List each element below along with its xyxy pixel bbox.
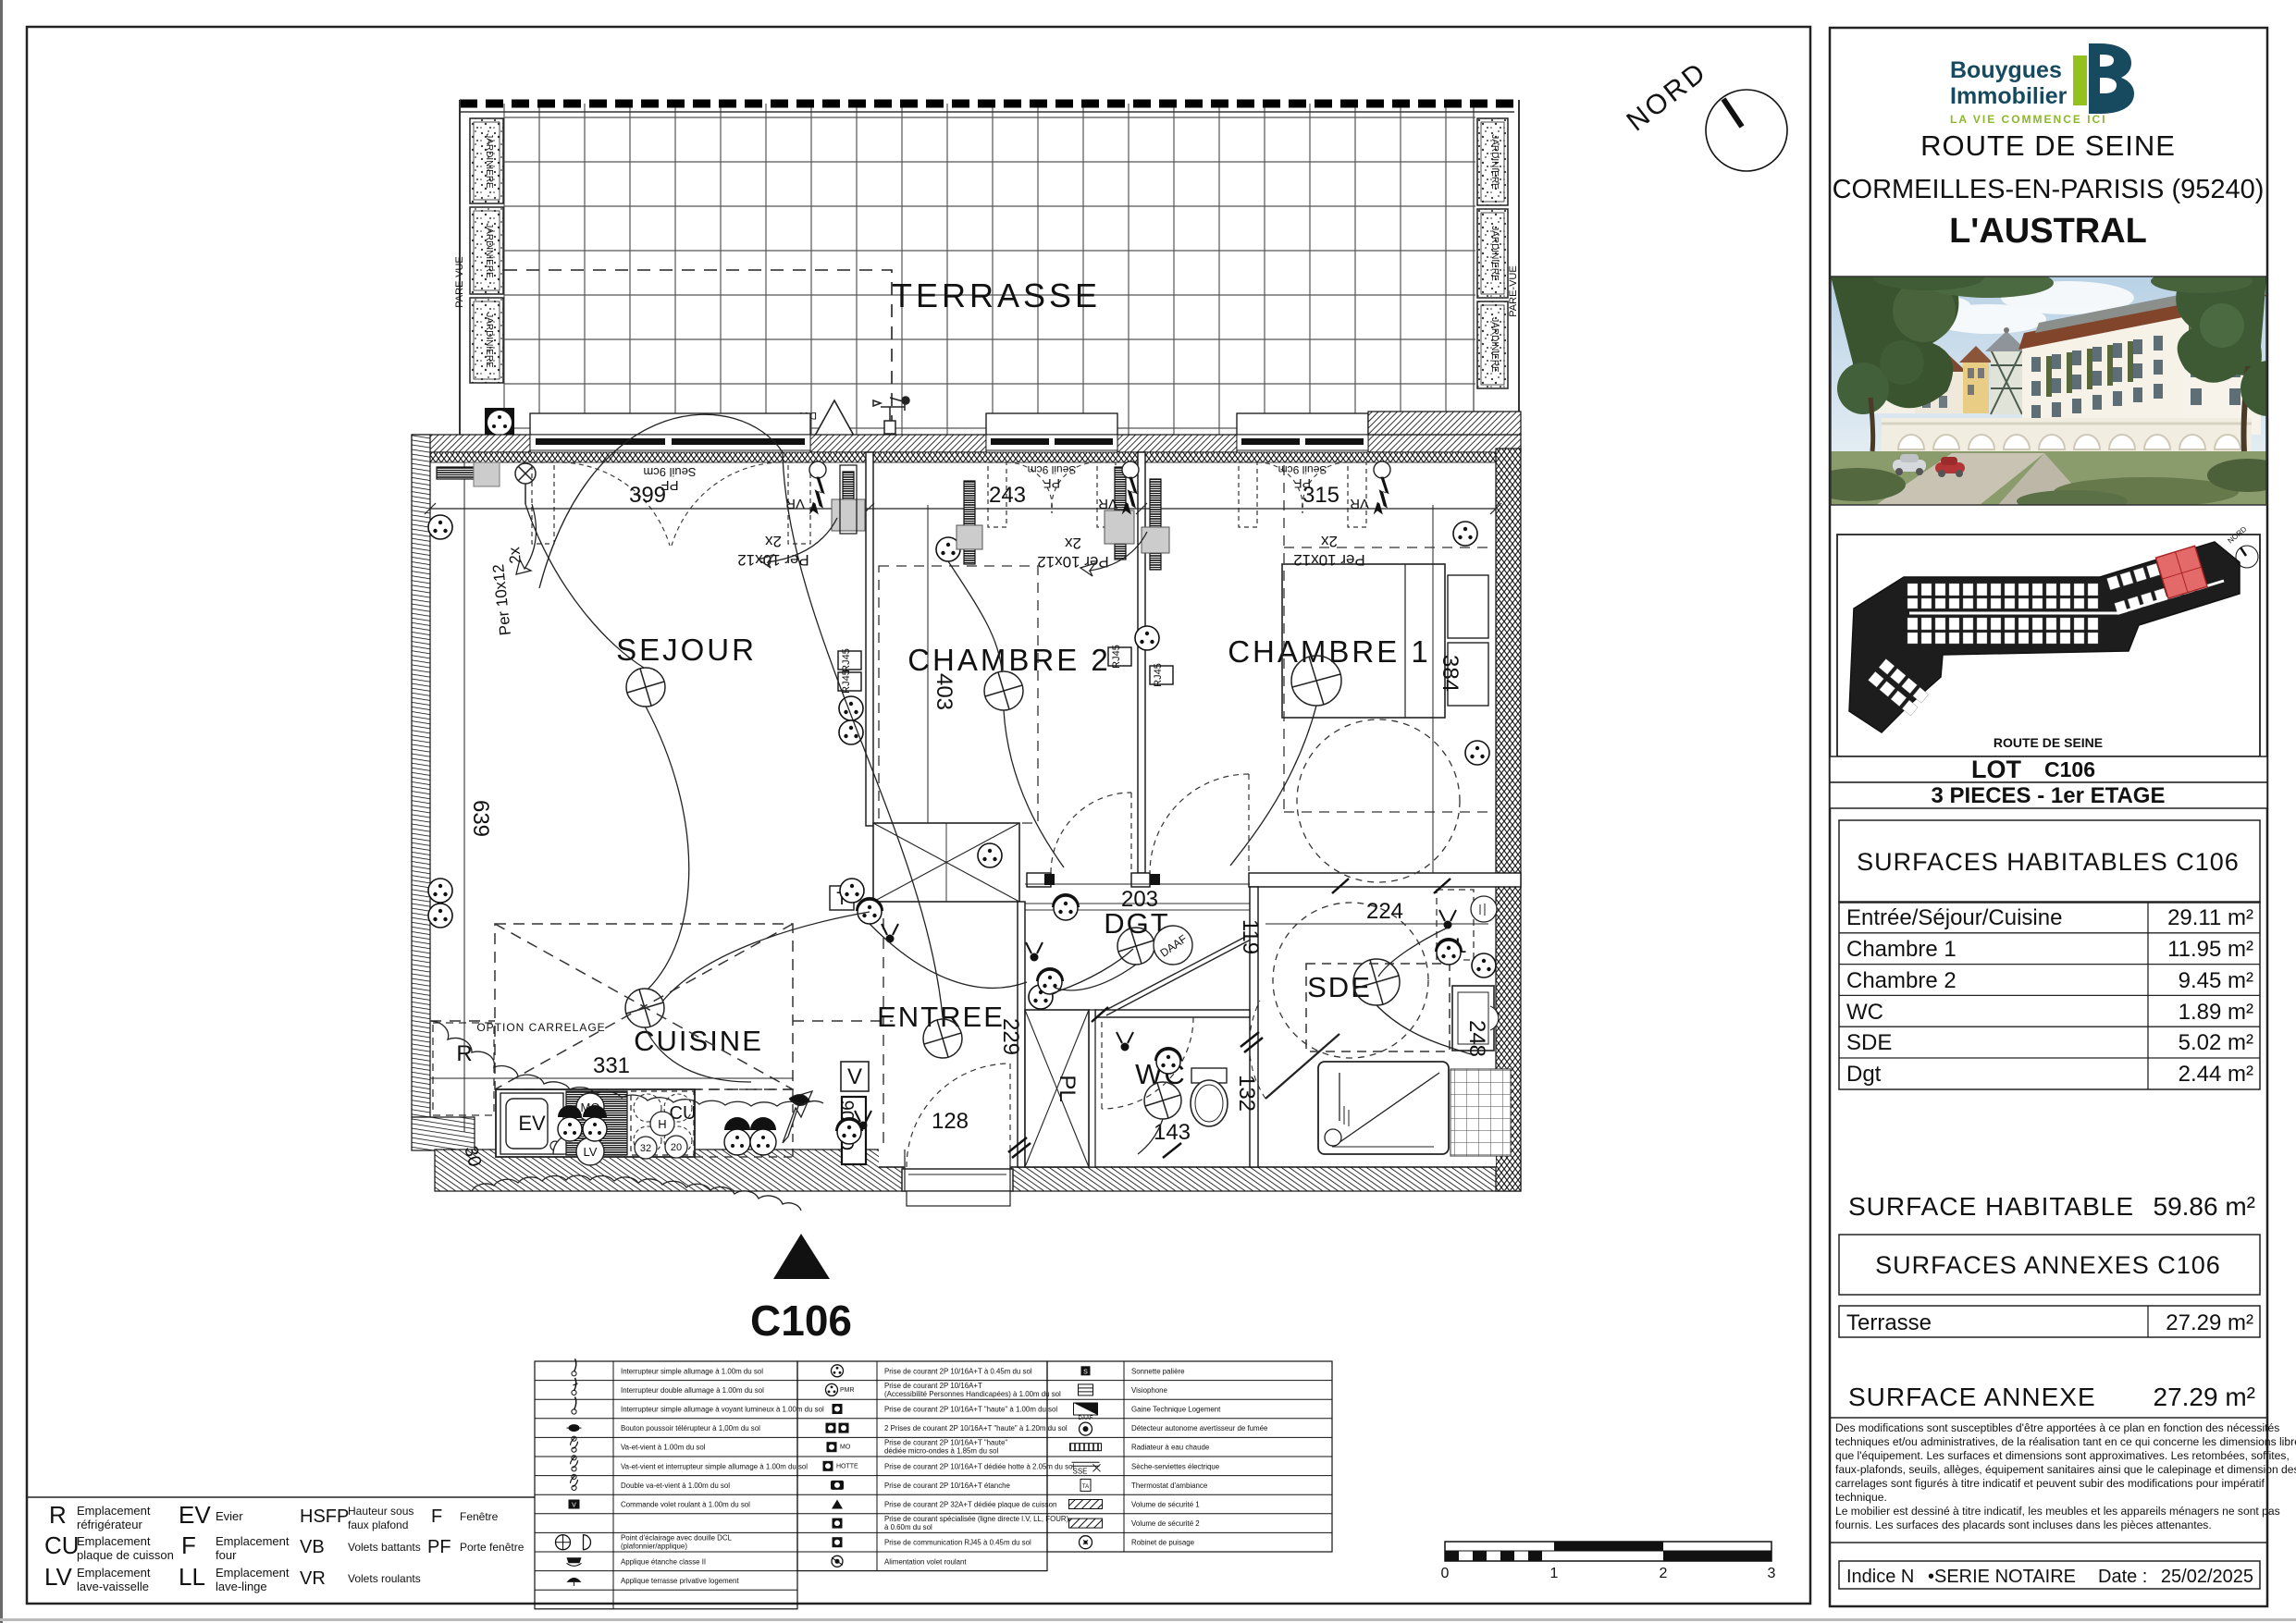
svg-text:SURFACE HABITABLE: SURFACE HABITABLE [1848,1192,2134,1221]
svg-text:PL: PL [1055,1075,1080,1101]
svg-text:Applique terrasse privative lo: Applique terrasse privative logement [621,1577,739,1585]
svg-text:2x: 2x [765,533,782,550]
svg-text:JARDINIERE: JARDINIERE [484,133,494,189]
svg-text:25/02/2025: 25/02/2025 [2161,1567,2253,1587]
svg-text:RJ45: RJ45 [1153,663,1164,687]
svg-text:SDE: SDE [1846,1030,1892,1055]
svg-text:2x: 2x [1065,535,1081,552]
svg-text:Commande volet roulant à 1.00m: Commande volet roulant à 1.00m du sol [621,1501,750,1509]
svg-text:Per 10x12: Per 10x12 [1037,553,1109,571]
svg-text:EV: EV [179,1501,211,1529]
svg-text:JARDINIERE: JARDINIERE [484,313,494,368]
svg-text:C106: C106 [2044,757,2095,781]
svg-text:Emplacement: Emplacement [216,1534,290,1548]
svg-text:L'AUSTRAL: L'AUSTRAL [1949,212,2147,251]
svg-text:1: 1 [1550,1566,1559,1581]
svg-text:Interrupteur simple allumage à: Interrupteur simple allumage à voyant lu… [621,1406,824,1414]
svg-text:réfrigérateur: réfrigérateur [77,1518,142,1531]
svg-text:ROUTE DE SEINE: ROUTE DE SEINE [1920,129,2176,162]
svg-text:27.29 m²: 27.29 m² [2154,1383,2256,1411]
svg-text:Prise de courant 2P 10/16A+T ": Prise de courant 2P 10/16A+T "haute" à 1… [884,1406,1057,1414]
svg-text:SDE: SDE [1307,971,1372,1003]
svg-text:11.95 m²: 11.95 m² [2167,937,2253,962]
svg-text:Sonnette palière: Sonnette palière [1131,1367,1185,1375]
svg-text:(Accessibilité Personnes Handi: (Accessibilité Personnes Handicapées) à … [884,1390,1061,1398]
svg-text:TA: TA [1082,1484,1089,1490]
svg-text:VB: VB [300,1537,325,1557]
svg-text:Terrasse: Terrasse [1846,1310,1932,1335]
svg-text:techniques et/ou administrativ: techniques et/ou administratives, de la … [1835,1435,2296,1448]
svg-text:Prise de courant 2P 10/16A+T é: Prise de courant 2P 10/16A+T étanche [884,1482,1011,1490]
svg-text:Volume de sécurité 1: Volume de sécurité 1 [1131,1501,1200,1509]
svg-text:2.44 m²: 2.44 m² [2179,1062,2253,1087]
svg-text:3 PIECES - 1er ETAGE: 3 PIECES - 1er ETAGE [1932,783,2166,808]
svg-text:Seuil 9cm: Seuil 9cm [1028,463,1077,476]
svg-text:PF: PF [1043,476,1060,491]
svg-text:Prise de courant 2P 10/16A+T: Prise de courant 2P 10/16A+T [884,1382,982,1390]
svg-text:5.02 m²: 5.02 m² [2179,1030,2253,1055]
svg-text:Indice N: Indice N [1846,1567,1914,1587]
svg-text:Visiophone: Visiophone [1131,1386,1168,1395]
svg-text:Dgt: Dgt [1846,1062,1882,1087]
svg-text:Volume de sécurité 2: Volume de sécurité 2 [1131,1519,1200,1528]
svg-text:248: 248 [1464,1020,1489,1057]
svg-text:Prise de courant 2P 10/16A+T d: Prise de courant 2P 10/16A+T dédiée hott… [884,1462,1074,1470]
svg-text:Prise de communication RJ45 à: Prise de communication RJ45 à 0.45m du s… [884,1539,1031,1547]
svg-text:ROUTE DE SEINE: ROUTE DE SEINE [1994,735,2103,750]
svg-text:Emplacement: Emplacement [216,1566,290,1580]
svg-text:Interrupteur double allumage à: Interrupteur double allumage à 1.00m du … [621,1386,764,1395]
svg-text:2x: 2x [1321,533,1338,550]
svg-text:LA VIE COMMENCE ICI: LA VIE COMMENCE ICI [1950,113,2107,126]
svg-text:Hauteur sous: Hauteur sous [348,1505,414,1518]
svg-text:Volets battants: Volets battants [348,1541,421,1554]
svg-text:EV: EV [518,1112,546,1135]
svg-text:VR: VR [1350,496,1369,511]
svg-text:dédiée micro-ondes à 1.85m du: dédiée micro-ondes à 1.85m du sol [884,1447,998,1456]
svg-text:Thermostat d'ambiance: Thermostat d'ambiance [1131,1482,1208,1490]
svg-text:technique.: technique. [1835,1491,1887,1504]
svg-text:403: 403 [932,673,957,710]
svg-text:Alimentation volet roulant: Alimentation volet roulant [884,1557,967,1566]
svg-text:SURFACES ANNEXES C106: SURFACES ANNEXES C106 [1875,1251,2221,1279]
svg-text:RJ45: RJ45 [841,670,852,694]
svg-text:DAAF: DAAF [1078,1416,1092,1421]
svg-text:LV: LV [584,1145,598,1159]
svg-text:four: four [216,1548,237,1562]
svg-text:331: 331 [593,1053,630,1078]
svg-text:224: 224 [1366,899,1403,924]
svg-text:Prise de courant 2P 32A+T dédi: Prise de courant 2P 32A+T dédiée plaque … [884,1501,1056,1509]
svg-text:Sèche-serviettes électrique: Sèche-serviettes électrique [1131,1462,1220,1470]
svg-text:2: 2 [1660,1566,1668,1581]
svg-text:Bouygues: Bouygues [1950,57,2062,83]
svg-text:à 0.60m du sol: à 0.60m du sol [884,1523,932,1531]
svg-text:Emplacement: Emplacement [77,1566,151,1580]
svg-text:V: V [572,1503,576,1509]
svg-text:Porte fenêtre: Porte fenêtre [460,1541,525,1554]
svg-text:Radiateur à eau chaude: Radiateur à eau chaude [1131,1444,1210,1452]
svg-text:CU: CU [44,1531,80,1559]
svg-text:CORMEILLES-EN-PARISIS (95240): CORMEILLES-EN-PARISIS (95240) [1833,175,2265,204]
svg-text:LL: LL [179,1563,205,1591]
svg-text:PF: PF [427,1537,451,1557]
svg-text:carrelages sont figurés à titr: carrelages sont figurés à titre indicati… [1835,1477,2265,1490]
svg-text:Le mobilier est dessiné à titr: Le mobilier est dessiné à titre indicati… [1835,1505,2280,1518]
svg-text:Interrupteur simple allumage à: Interrupteur simple allumage à 1.00m du … [621,1367,763,1375]
svg-text:H: H [658,1117,666,1131]
svg-text:315: 315 [1302,483,1339,508]
svg-text:384: 384 [1438,655,1463,692]
svg-text:Fenêtre: Fenêtre [460,1510,499,1523]
svg-text:JARDINIERE: JARDINIERE [1489,134,1500,190]
svg-text:Des modifications sont suscept: Des modifications sont susceptibles d'êt… [1835,1421,2279,1434]
svg-text:Date :: Date : [2098,1567,2147,1587]
svg-text:203: 203 [1121,887,1158,912]
svg-text:Per 10x12: Per 10x12 [1293,551,1365,569]
svg-text:F: F [181,1531,196,1559]
svg-text:PMR: PMR [840,1387,855,1394]
svg-text:Chambre 1: Chambre 1 [1846,937,1957,962]
svg-text:20: 20 [671,1142,682,1153]
svg-text:Gaine Technique Logement: Gaine Technique Logement [1131,1406,1221,1414]
svg-text:plaque de cuisson: plaque de cuisson [77,1548,174,1562]
svg-text:243: 243 [989,483,1026,508]
svg-text:Bouton poussoir télérupteur à: Bouton poussoir télérupteur à 1,00m du s… [621,1424,760,1432]
svg-text:PARE-VUE: PARE-VUE [1508,265,1519,316]
svg-text:lave-vaisselle: lave-vaisselle [77,1580,149,1593]
svg-text:TERRASSE: TERRASSE [892,277,1101,314]
svg-text:128: 128 [932,1109,969,1134]
svg-text:RJ45: RJ45 [1111,645,1122,669]
svg-text:Entrée/Séjour/Cuisine: Entrée/Séjour/Cuisine [1846,905,2062,930]
svg-text:WC: WC [1846,1000,1883,1025]
svg-text:Emplacement: Emplacement [77,1504,151,1518]
svg-text:F: F [431,1506,442,1527]
svg-text:LV: LV [44,1563,73,1591]
svg-text:lave-linge: lave-linge [216,1580,267,1593]
svg-text:32: 32 [640,1143,651,1154]
svg-text:HSFP: HSFP [300,1506,349,1527]
svg-text:HOTTE: HOTTE [836,1463,858,1469]
svg-text:Double va-et-vient à 1.00m du: Double va-et-vient à 1.00m du sol [621,1482,730,1490]
svg-text:RJ45: RJ45 [841,648,852,672]
svg-text:Chambre 2: Chambre 2 [1846,968,1957,993]
svg-text:Point d'éclairage avec douille: Point d'éclairage avec douille DCL [621,1534,733,1543]
svg-text:fournis. Les surfaces des plac: fournis. Les surfaces des placards sont … [1835,1518,2212,1531]
svg-text:3: 3 [1768,1566,1776,1581]
svg-text:Applique étanche classe II: Applique étanche classe II [621,1557,706,1566]
svg-text:29.11 m²: 29.11 m² [2167,905,2253,930]
svg-text:MO: MO [840,1445,851,1451]
svg-text:SEJOUR: SEJOUR [616,633,757,667]
svg-text:9.45 m²: 9.45 m² [2179,968,2253,993]
svg-text:JARDINIERE: JARDINIERE [484,223,494,278]
svg-text:que l'équipement. Les surfaces: que l'équipement. Les surfaces et dimens… [1835,1449,2290,1462]
svg-text:VR: VR [300,1568,326,1589]
svg-text:119: 119 [1238,919,1263,954]
svg-text:Prise de courant 2P 10/16A+T: Prise de courant 2P 10/16A+T à 0.45m du … [884,1367,1032,1375]
svg-text:PARE-VUE: PARE-VUE [454,256,465,307]
svg-text:143: 143 [1154,1120,1191,1145]
svg-text:(plafonnier/applique): (plafonnier/applique) [621,1543,687,1551]
svg-text:Prise de courant spécialisée (: Prise de courant spécialisée (ligne dire… [884,1515,1069,1523]
svg-text:Seuil 9cm: Seuil 9cm [1278,463,1327,476]
svg-text:Va-et-vient et interrupteur si: Va-et-vient et interrupteur simple allum… [621,1462,808,1470]
svg-text:JARDINIERE: JARDINIERE [1489,226,1500,281]
svg-text:S: S [1083,1369,1088,1375]
svg-text:229: 229 [998,1018,1023,1055]
svg-text:faux plafond: faux plafond [348,1518,408,1531]
svg-text:2 Prises de courant 2P 10/16A+: 2 Prises de courant 2P 10/16A+T "haute" … [884,1424,1068,1432]
svg-text:399: 399 [629,483,666,508]
svg-text:0: 0 [1441,1566,1450,1581]
svg-text:Emplacement: Emplacement [77,1534,151,1548]
svg-text:639: 639 [468,800,493,837]
svg-text:•SERIE NOTAIRE: •SERIE NOTAIRE [1928,1567,2076,1587]
svg-text:C106: C106 [750,1297,852,1345]
svg-text:VR: VR [1098,496,1117,511]
svg-text:27.29 m²: 27.29 m² [2166,1310,2253,1335]
svg-text:SSE: SSE [1073,1467,1088,1475]
svg-text:CHAMBRE 1: CHAMBRE 1 [1228,634,1431,669]
svg-text:Détecteur autonome avertisseur: Détecteur autonome avertisseur de fumée [1131,1424,1268,1432]
svg-text:SURFACE ANNEXE: SURFACE ANNEXE [1848,1383,2096,1411]
svg-text:Robinet de puisage: Robinet de puisage [1131,1539,1195,1547]
svg-text:LOT: LOT [1971,756,2021,783]
svg-text:V: V [847,1064,862,1089]
svg-text:Immobilier: Immobilier [1950,83,2068,109]
svg-text:1.89 m²: 1.89 m² [2179,1000,2253,1025]
svg-text:Va-et-vient à 1.00m du sol: Va-et-vient à 1.00m du sol [621,1444,706,1452]
svg-text:Volets roulants: Volets roulants [348,1572,421,1585]
svg-text:Seuil 9cm: Seuil 9cm [643,465,696,479]
svg-text:Prise de courant 2P 10/16A+T ": Prise de courant 2P 10/16A+T "haute" [884,1439,1007,1447]
svg-text:faux-plafonds, seuils, allèges: faux-plafonds, seuils, allèges, équipeme… [1835,1463,2296,1476]
svg-text:Evier: Evier [216,1509,243,1523]
svg-text:OPTION CARRELAGE: OPTION CARRELAGE [476,1021,605,1034]
svg-text:132: 132 [1234,1075,1259,1112]
svg-text:R: R [49,1501,67,1529]
svg-text:SURFACES HABITABLES C106: SURFACES HABITABLES C106 [1857,848,2240,876]
svg-text:59.86 m²: 59.86 m² [2154,1192,2256,1221]
svg-text:JARDINIERE: JARDINIERE [1489,317,1500,373]
